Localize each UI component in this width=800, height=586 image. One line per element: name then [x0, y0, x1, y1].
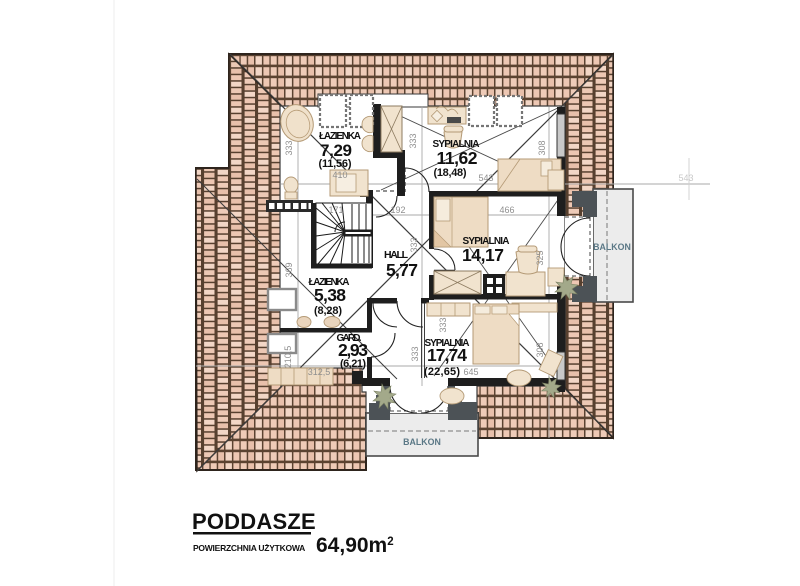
svg-text:308: 308 — [537, 140, 547, 155]
svg-text:333: 333 — [284, 140, 294, 155]
svg-text:325: 325 — [535, 250, 545, 265]
svg-text:(22,65): (22,65) — [424, 366, 460, 378]
svg-text:BALKON: BALKON — [403, 437, 441, 447]
svg-text:64,90m2: 64,90m2 — [316, 534, 394, 557]
svg-text:(18,48): (18,48) — [434, 167, 467, 179]
svg-text:210,5: 210,5 — [283, 346, 293, 369]
svg-text:308: 308 — [535, 342, 545, 357]
svg-text:466: 466 — [499, 205, 514, 215]
svg-text:5,38: 5,38 — [314, 285, 346, 305]
svg-text:5,77: 5,77 — [386, 260, 418, 280]
svg-text:333: 333 — [438, 317, 448, 332]
svg-text:POWIERZCHNIA UŻYTKOWA: POWIERZCHNIA UŻYTKOWA — [193, 543, 305, 553]
svg-text:369: 369 — [284, 262, 294, 277]
svg-text:645: 645 — [463, 367, 478, 377]
svg-text:PODDASZE: PODDASZE — [192, 509, 316, 534]
svg-text:410: 410 — [332, 170, 347, 180]
svg-text:312,5: 312,5 — [308, 367, 331, 377]
svg-text:(6,21): (6,21) — [340, 358, 366, 370]
svg-text:543: 543 — [478, 173, 493, 183]
svg-text:543: 543 — [678, 173, 693, 183]
svg-text:(8,28): (8,28) — [314, 305, 342, 317]
svg-text:11,62: 11,62 — [437, 148, 478, 168]
svg-text:BALKON: BALKON — [593, 242, 631, 252]
svg-text:2,93: 2,93 — [338, 340, 368, 360]
svg-text:(11,56): (11,56) — [319, 158, 352, 170]
svg-text:171: 171 — [328, 205, 343, 215]
svg-text:333: 333 — [409, 237, 419, 252]
svg-text:192: 192 — [390, 205, 405, 215]
svg-text:14,17: 14,17 — [462, 245, 504, 265]
svg-text:333: 333 — [410, 346, 420, 361]
svg-text:17,74: 17,74 — [427, 345, 467, 365]
svg-text:333: 333 — [408, 133, 418, 148]
